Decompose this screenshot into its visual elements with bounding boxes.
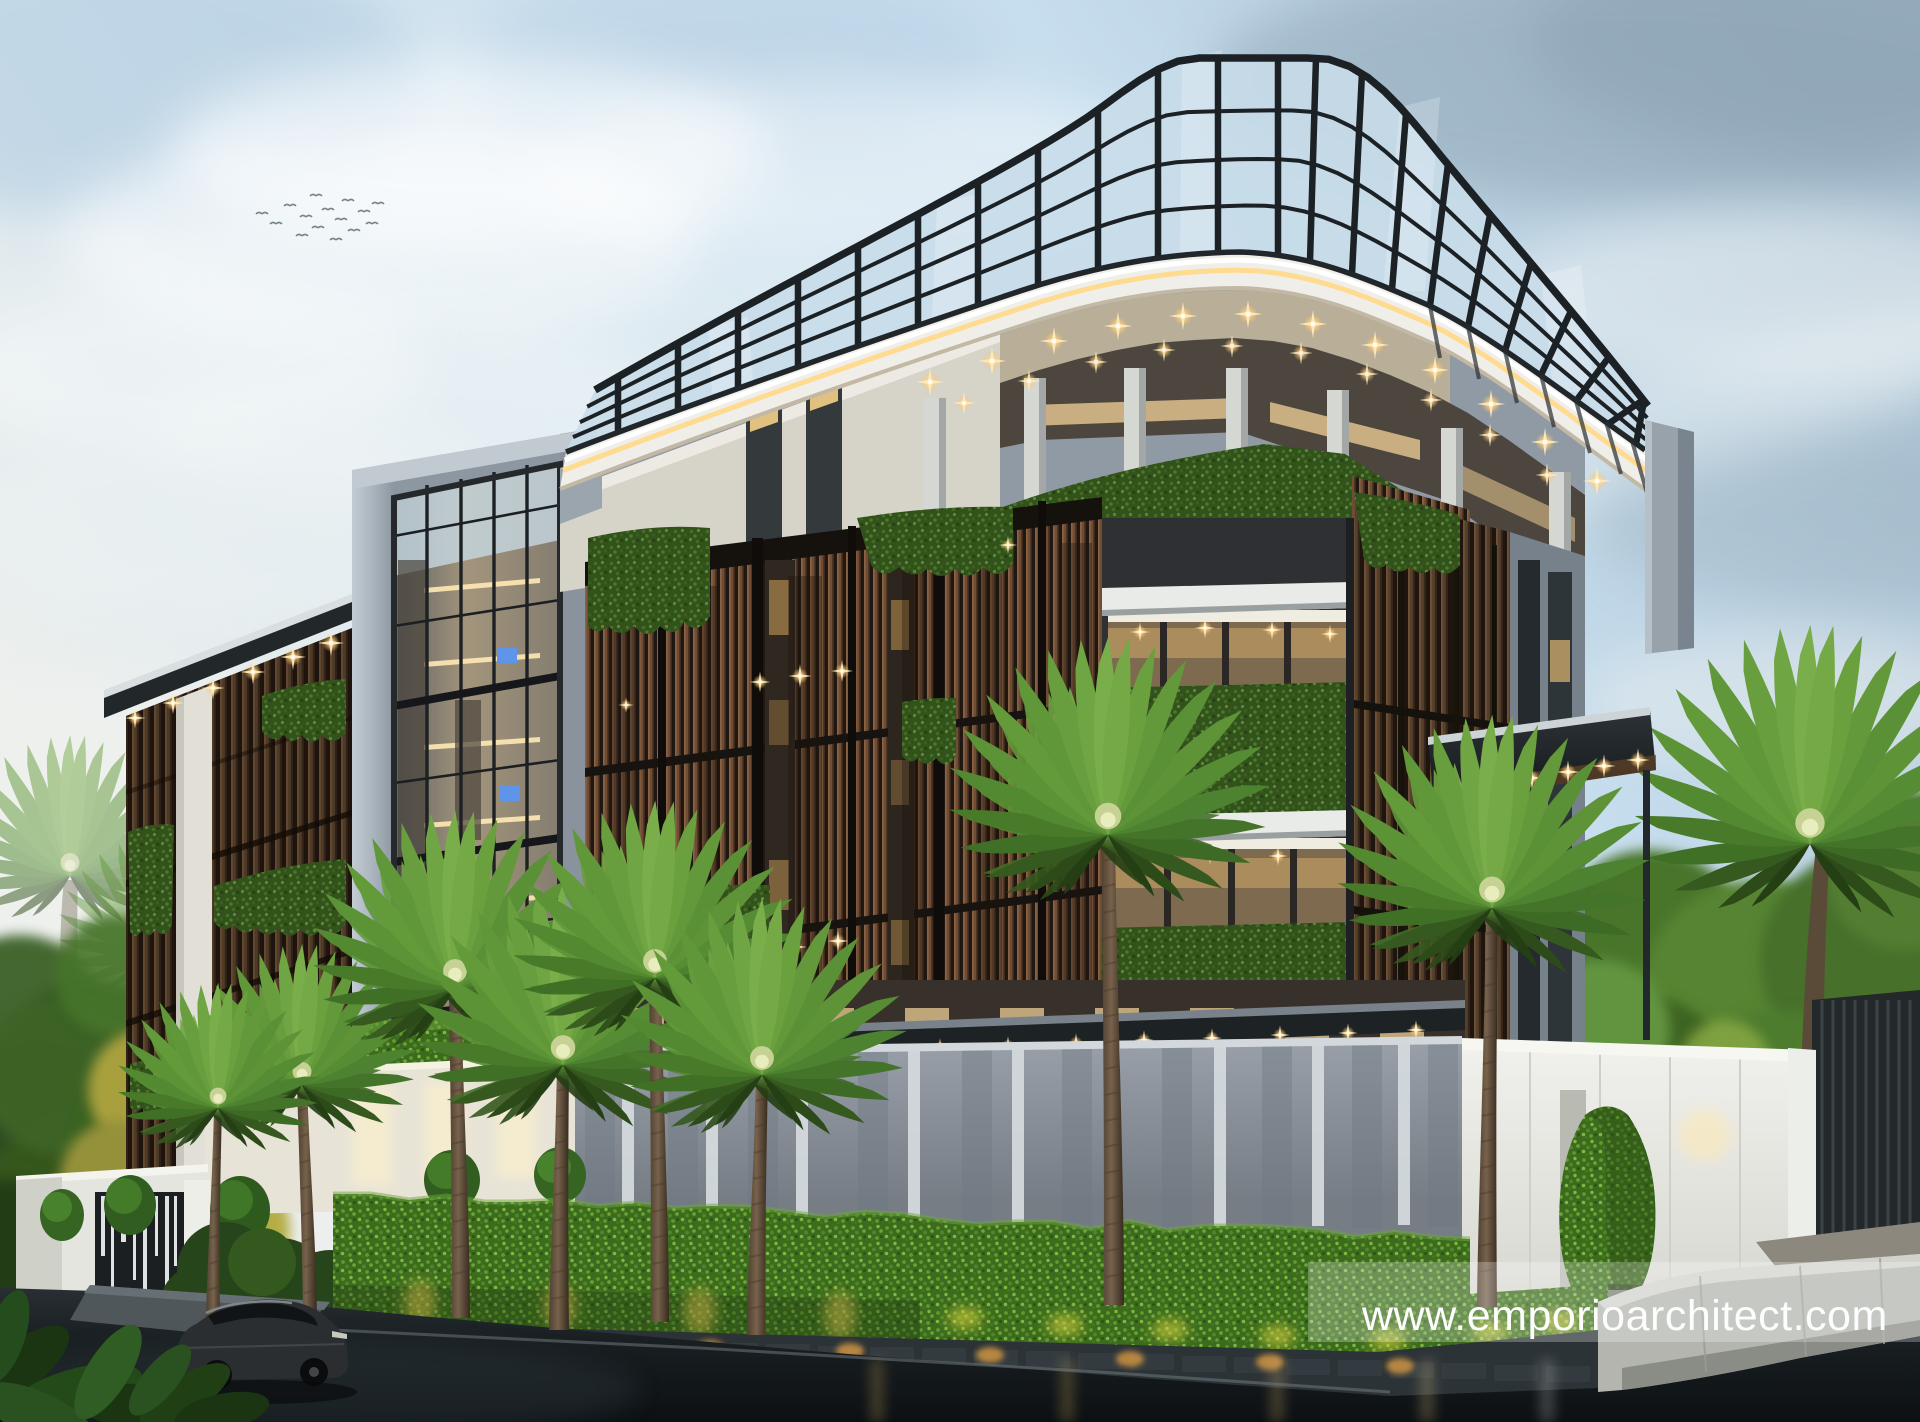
svg-text:www.emporioarchitect.com: www.emporioarchitect.com (1361, 1292, 1888, 1340)
